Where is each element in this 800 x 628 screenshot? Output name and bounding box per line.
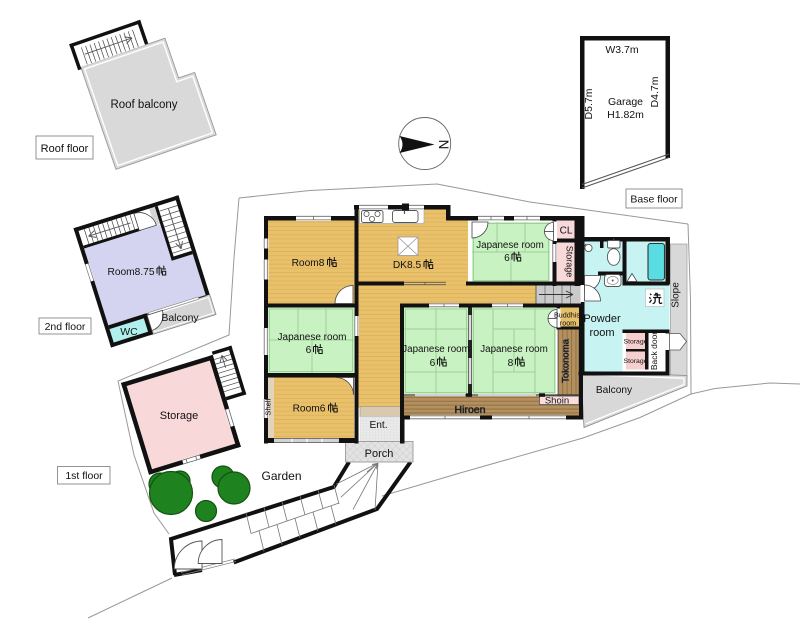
svg-text:Balcony: Balcony [596,385,633,396]
svg-text:D4.7m: D4.7m [649,76,661,107]
svg-text:Storage: Storage [565,246,575,278]
svg-text:Storage: Storage [624,339,648,346]
svg-text:8: 8 [508,358,514,369]
svg-text:Shelf: Shelf [264,398,273,416]
svg-text:Japanese room: Japanese room [476,240,544,251]
svg-text:Japanese room: Japanese room [402,344,470,355]
svg-text:Garden: Garden [261,469,301,483]
svg-text:Shoin: Shoin [545,396,569,407]
svg-text:DK8.5: DK8.5 [393,260,422,271]
svg-text:W3.7m: W3.7m [605,44,639,56]
svg-text:Back door: Back door [649,332,659,370]
svg-text:room: room [589,327,614,339]
svg-text:Roof balcony: Roof balcony [110,99,177,111]
svg-text:Balcony: Balcony [161,312,199,324]
svg-text:D5.7m: D5.7m [583,88,595,119]
svg-text:Storage: Storage [160,410,199,422]
svg-text:6: 6 [504,253,510,264]
svg-text:Japanese room: Japanese room [480,344,548,355]
svg-text:Storage: Storage [624,358,648,365]
svg-text:WC: WC [120,326,138,338]
svg-text:CL: CL [560,226,573,237]
svg-text:Ent.: Ent. [369,420,387,431]
svg-text:Powder: Powder [583,313,621,325]
svg-text:H1.82m: H1.82m [607,109,644,121]
svg-text:Japanese room: Japanese room [278,332,347,343]
svg-text:room: room [560,319,576,328]
svg-text:Room6: Room6 [293,404,326,415]
svg-text:6: 6 [430,358,436,369]
svg-text:Base floor: Base floor [630,194,678,206]
svg-text:6: 6 [306,345,312,356]
svg-text:2nd floor: 2nd floor [45,321,86,333]
svg-text:Roof floor: Roof floor [41,143,89,155]
svg-text:Room8.75: Room8.75 [107,267,154,278]
svg-text:N: N [436,140,451,150]
svg-text:Garage: Garage [608,96,643,108]
svg-text:Hiroen: Hiroen [455,404,486,416]
svg-text:Tokonoma: Tokonoma [561,338,572,383]
svg-text:1st floor: 1st floor [65,470,103,482]
svg-text:Porch: Porch [365,448,394,460]
svg-text:Slope: Slope [671,282,682,308]
svg-text:Room8: Room8 [292,258,325,269]
